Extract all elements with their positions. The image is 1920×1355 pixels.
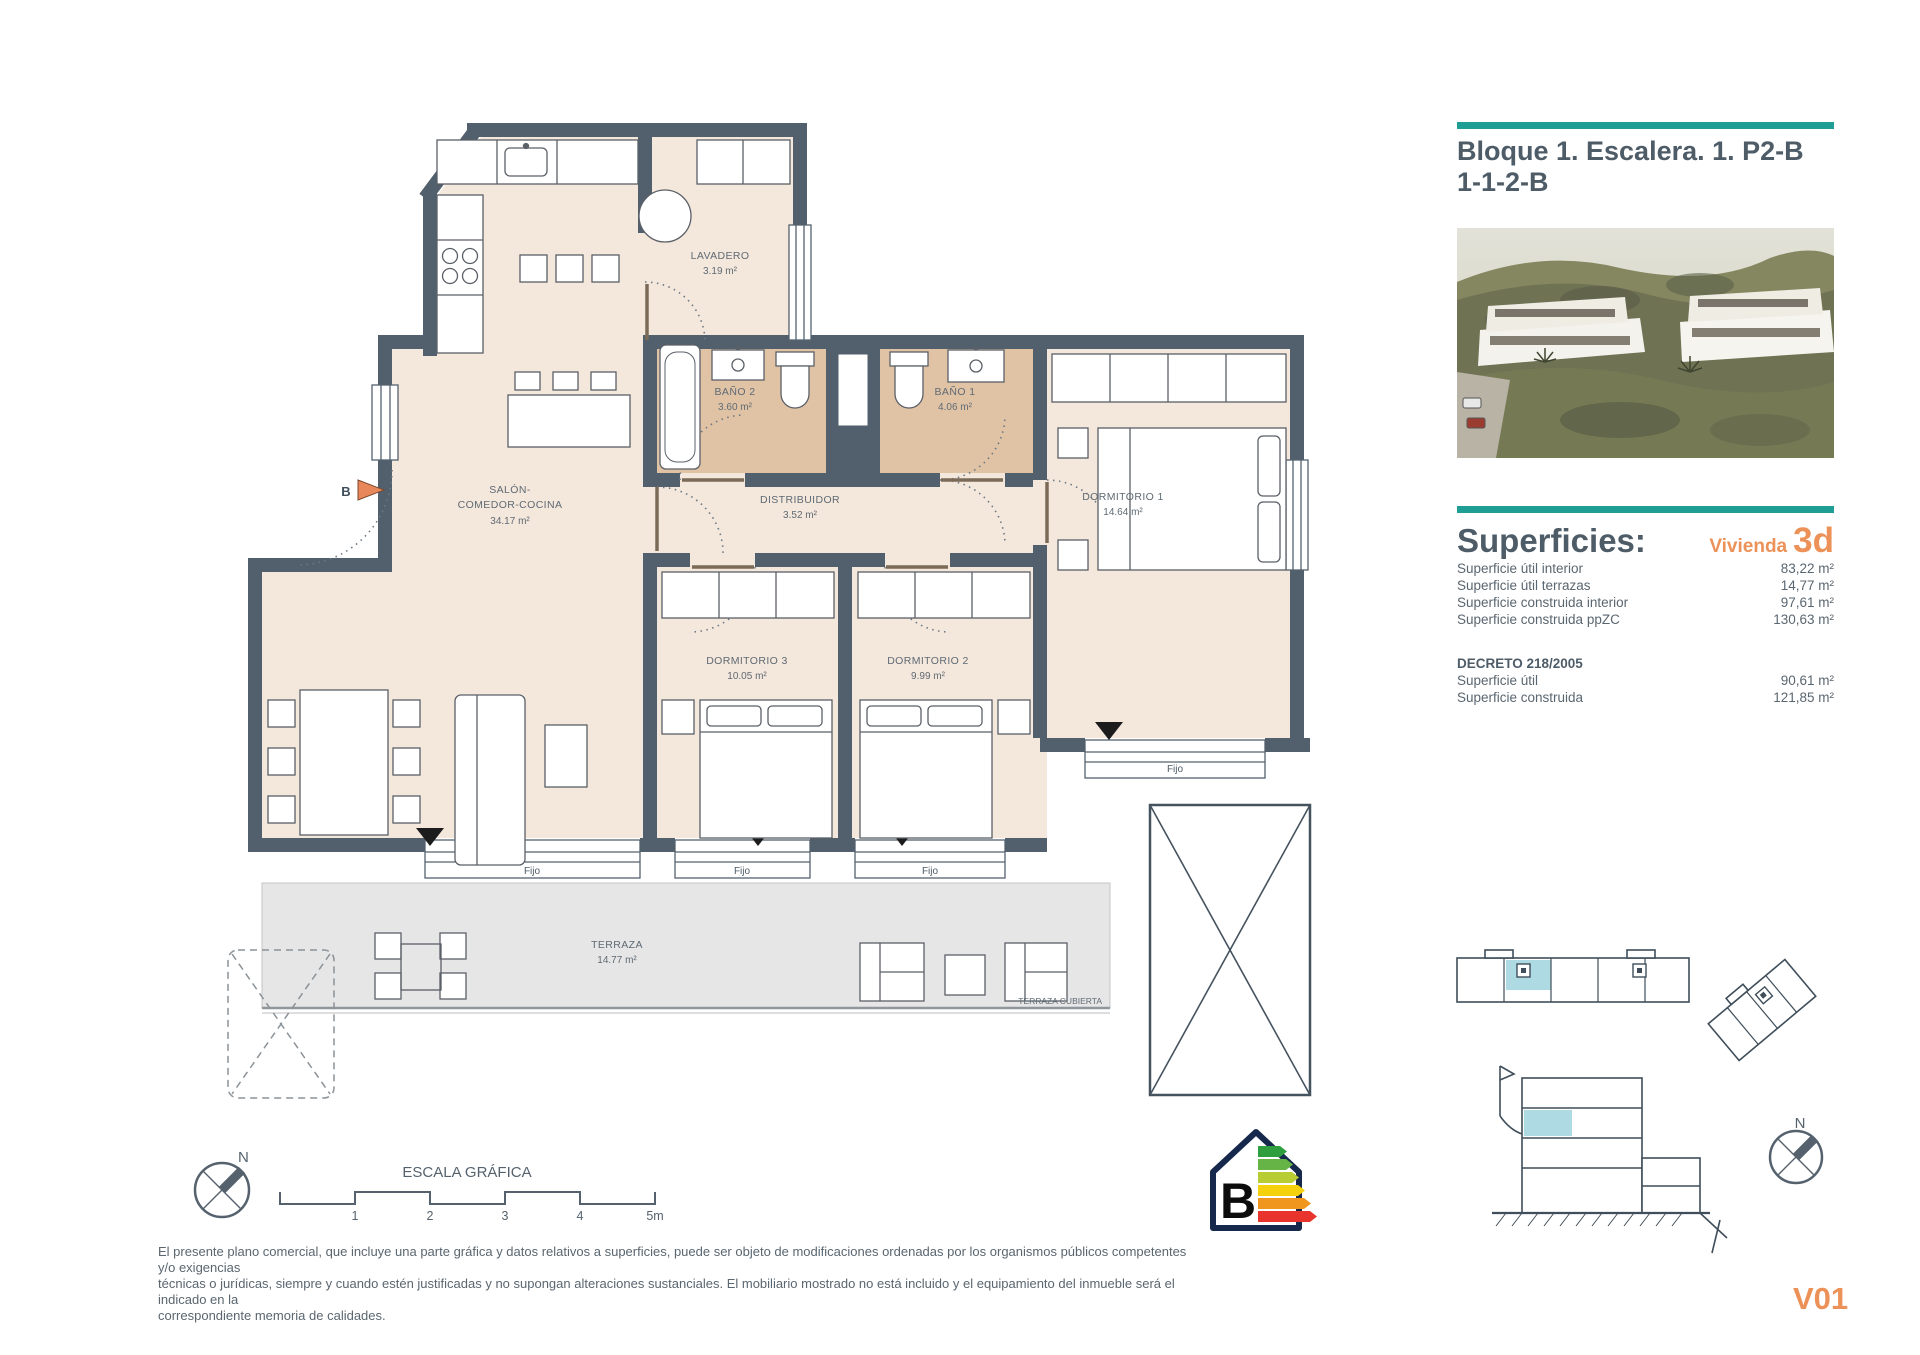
wardrobe-dorm2	[858, 572, 1030, 618]
room-dormitorio2-area: 9.99 m²	[911, 671, 946, 682]
development-photo	[1457, 228, 1834, 458]
superficies-header: Superficies: Vivienda3d	[1457, 521, 1834, 561]
fijo-label-dorm3: Fijo	[734, 866, 751, 877]
window-dorm1-right	[1286, 460, 1308, 570]
page-title: Bloque 1. Escalera. 1. P2-B 1-1-2-B	[1457, 136, 1877, 198]
room-bano1-area: 4.06 m²	[938, 402, 973, 413]
dining-table	[268, 690, 420, 835]
row-value: 121,85 m²	[1773, 689, 1834, 706]
compass-right-n: N	[1795, 1115, 1806, 1132]
fijo-label-dorm1: Fijo	[1167, 764, 1184, 775]
energy-label: B	[1213, 1132, 1317, 1229]
scale-tick-2: 2	[427, 1209, 434, 1223]
pergola	[1150, 805, 1310, 1095]
graphic-scale: ESCALA GRÁFICA 1 2 3 4 5m	[280, 1164, 664, 1223]
table-row: Superficie útil terrazas 14,77 m²	[1457, 577, 1834, 594]
vivienda-tag: Vivienda3d	[1709, 521, 1834, 561]
title-line-2: 1-1-2-B	[1457, 167, 1877, 198]
row-value: 83,22 m²	[1781, 560, 1834, 577]
row-label: Superficie útil	[1457, 672, 1538, 689]
row-label: Superficie útil terrazas	[1457, 577, 1591, 594]
scale-tick-1: 1	[352, 1209, 359, 1223]
energy-rating-letter: B	[1220, 1173, 1256, 1229]
title-accent-bar	[1457, 122, 1834, 129]
room-dormitorio3-name: DORMITORIO 3	[706, 655, 788, 667]
table-row: Superficie construida ppZC 130,63 m²	[1457, 611, 1834, 628]
room-bano2-area: 3.60 m²	[718, 402, 753, 413]
section-marker-letter: B	[341, 484, 350, 499]
room-dormitorio3-area: 10.05 m²	[727, 671, 767, 682]
room-distribuidor-name: DISTRIBUIDOR	[760, 494, 840, 506]
unit-code: V01	[1793, 1281, 1848, 1317]
section-marker: B	[341, 480, 384, 500]
room-lavadero-area: 3.19 m²	[703, 266, 738, 277]
scale-tick-3: 3	[502, 1209, 509, 1223]
superficies-heading: Superficies:	[1457, 522, 1646, 560]
scale-tick-4: 4	[577, 1209, 584, 1223]
highlighted-unit-section	[1524, 1110, 1572, 1136]
table-row: Superficie construida 121,85 m²	[1457, 689, 1834, 706]
room-terraza-name: TERRAZA	[591, 939, 643, 951]
disclaimer-line: técnicas o jurídicas, siempre y cuando e…	[158, 1276, 1203, 1308]
compass-right: N	[1770, 1115, 1822, 1183]
row-label: Superficie construida interior	[1457, 594, 1628, 611]
room-lavadero-name: LAVADERO	[691, 250, 750, 262]
room-salon-name2: COMEDOR-COCINA	[458, 499, 563, 511]
sink-bano1	[948, 346, 1004, 382]
table-row: Superficie construida interior 97,61 m²	[1457, 594, 1834, 611]
room-distribuidor-area: 3.52 m²	[783, 510, 818, 521]
scale-tick-5: 5m	[646, 1209, 663, 1223]
row-label: Superficie útil interior	[1457, 560, 1583, 577]
building-right	[1680, 288, 1834, 362]
kitchen-island	[508, 372, 630, 447]
key-plan-top	[1457, 950, 1689, 1002]
scale-bar	[280, 1192, 655, 1204]
toilet-bano1	[890, 352, 928, 408]
vivienda-label: Vivienda	[1709, 536, 1787, 557]
room-dormitorio2-name: DORMITORIO 2	[887, 655, 969, 667]
superficies-table: Superficie útil interior 83,22 m² Superf…	[1457, 560, 1834, 628]
sink-bano2	[712, 346, 764, 380]
bathtub-bano2	[660, 345, 700, 469]
table-row: Superficie útil interior 83,22 m²	[1457, 560, 1834, 577]
superficies-accent-bar	[1457, 506, 1834, 513]
room-dormitorio1-name: DORMITORIO 1	[1082, 491, 1164, 503]
vivienda-type: 3d	[1793, 521, 1834, 560]
title-line-1: Bloque 1. Escalera. 1. P2-B	[1457, 136, 1877, 167]
kitchen-counter	[437, 140, 638, 184]
room-terraza-area: 14.77 m²	[597, 955, 637, 966]
fijo-label-salon: Fijo	[524, 866, 541, 877]
compass-left-n: N	[238, 1149, 249, 1166]
room-salon-name1: SALÓN-	[489, 483, 531, 496]
row-value: 90,61 m²	[1781, 672, 1834, 689]
wardrobe-dorm3	[662, 572, 834, 618]
decreto-block: DECRETO 218/2005 Superficie útil 90,61 m…	[1457, 655, 1834, 706]
legal-disclaimer: El presente plano comercial, que incluye…	[158, 1244, 1203, 1324]
terraza-cubierta-label: TERRAZA CUBIERTA	[1018, 996, 1102, 1006]
floorplan-page: Fijo Fijo Fijo Fijo B	[0, 0, 1920, 1355]
scale-title: ESCALA GRÁFICA	[402, 1164, 531, 1181]
row-value: 97,61 m²	[1781, 594, 1834, 611]
room-bano1-name: BAÑO 1	[935, 385, 976, 398]
apartment-floorplan: Fijo Fijo Fijo Fijo B	[228, 123, 1310, 1098]
row-label: Superficie construida ppZC	[1457, 611, 1620, 628]
window-lavadero-right	[789, 225, 811, 340]
decreto-heading: DECRETO 218/2005	[1457, 655, 1834, 672]
row-value: 14,77 m²	[1781, 577, 1834, 594]
compass-needle-icon	[1796, 1138, 1815, 1157]
kitchen-left-column	[437, 195, 483, 353]
table-row: Superficie útil 90,61 m²	[1457, 672, 1834, 689]
fijo-label-dorm2: Fijo	[922, 866, 939, 877]
compass-needle-icon	[222, 1170, 242, 1190]
room-bano2-name: BAÑO 2	[715, 385, 756, 398]
disclaimer-line: correspondiente memoria de calidades.	[158, 1308, 1203, 1324]
kitchen-wall-cabinets	[520, 255, 619, 282]
section-diagram	[1492, 1066, 1727, 1253]
row-label: Superficie construida	[1457, 689, 1583, 706]
room-dormitorio1-area: 14.64 m²	[1103, 507, 1143, 518]
toilet-bano2	[776, 352, 814, 408]
room-salon-area: 34.17 m²	[490, 516, 530, 527]
disclaimer-line: El presente plano comercial, que incluye…	[158, 1244, 1203, 1276]
compass-left: N	[195, 1149, 249, 1217]
window-salon-left	[372, 385, 398, 460]
row-value: 130,63 m²	[1773, 611, 1834, 628]
shaft-opening	[838, 354, 868, 426]
key-plan-rotated	[1703, 953, 1816, 1060]
wardrobe-dorm1	[1052, 354, 1286, 402]
